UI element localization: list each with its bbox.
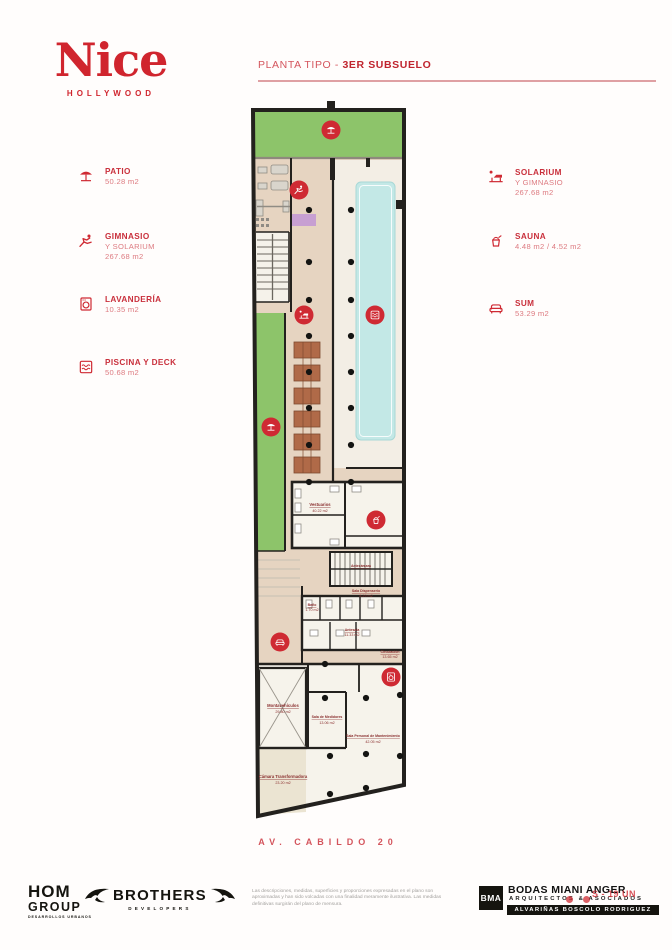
legend-label: SOLARIUM: [515, 168, 563, 178]
legend-subline: Y SOLARIUM: [105, 242, 155, 252]
laundry-marker: [382, 668, 401, 687]
hom-line2: GROUP: [28, 901, 92, 914]
legend-label: SAUNA: [515, 232, 581, 242]
bma-monogram: BMA: [479, 886, 503, 910]
legend-item-gimnasio: GIMNASIO Y SOLARIUM 267.68 m2: [78, 232, 155, 262]
room-label: Montavehículos: [267, 703, 299, 708]
brand-name: Nice: [50, 34, 172, 86]
legend-area: 10.35 m2: [105, 305, 161, 315]
patio-marker-2: [262, 418, 281, 437]
room-area: 1.70 m2: [305, 608, 318, 612]
room-label: Antecámara: [351, 564, 371, 568]
floor-plan: Vestuarios 40.22 m2 Antecámara Sala Disp…: [238, 94, 418, 834]
brothers-name: BROTHERS: [113, 887, 207, 904]
room-area: 29.80 m2: [275, 710, 290, 714]
brothers-subtitle: DEVELOPERS: [84, 906, 236, 911]
legend-area: 267.68 m2: [105, 252, 155, 262]
room-area: 13.06 m2: [319, 721, 334, 725]
legend-subline: Y GIMNASIO: [515, 178, 563, 188]
room-label: Cámara Transformadora: [259, 774, 308, 779]
legend-label: PATIO: [105, 167, 139, 177]
legal-disclaimer: Las descripciones, medidas, superficies …: [252, 889, 467, 908]
page-title: PLANTA TIPO - 3ER SUBSUELO: [258, 59, 431, 71]
room-label: Sala Personal de Mantenimiento: [346, 734, 400, 738]
sauna-icon: [488, 233, 504, 249]
room-area: 23.20 m2: [275, 781, 290, 785]
disclaimer-line: aproximadas y han sido volcadas con una …: [252, 895, 467, 901]
street-address: AV. CABILDO 20: [230, 837, 426, 847]
patio-marker: [322, 121, 341, 140]
room-label: Sala Dispenserio: [352, 589, 380, 593]
baths-zone: [302, 596, 404, 650]
legend-label: PISCINA Y DECK: [105, 358, 176, 368]
eagle-right-icon: [210, 885, 236, 905]
disclaimer-line: definitivas surgirán del plano de mensur…: [252, 902, 467, 908]
sauna-marker: [367, 511, 386, 530]
room-area: 13.65 m2: [382, 655, 397, 659]
bma-firm-name: BODAS MIANI ANGER: [508, 884, 672, 896]
laundry-icon: [78, 296, 94, 312]
legend-area: 50.28 m2: [105, 177, 139, 187]
brothers-developers-logo: BROTHERS DEVELOPERS: [84, 885, 236, 911]
gym-mat: [292, 214, 316, 226]
legend-area: 4.48 m2 / 4.52 m2: [515, 242, 581, 252]
legend-item-patio: PATIO 50.28 m2: [78, 167, 139, 187]
legend-item-solarium: SOLARIUM Y GIMNASIO 267.68 m2: [488, 168, 563, 198]
sum-icon: [488, 300, 504, 316]
bma-firm-subtitle: ARQUITECTOS & ASOCIADOS: [509, 896, 672, 902]
legend-item-piscina: PISCINA Y DECK 50.68 m2: [78, 358, 176, 378]
solarium-icon: [488, 169, 504, 185]
room-area: 11.33 m2: [344, 633, 359, 637]
brochure-page: Nice HOLLYWOOD PLANTA TIPO - 3ER SUBSUEL…: [0, 0, 672, 950]
brand-logo: Nice HOLLYWOOD: [50, 34, 172, 98]
legend-area: 53.29 m2: [515, 309, 549, 319]
bma-partners-bar: ALVARIÑAS BOSCOLO RODRIGUEZ: [507, 905, 659, 915]
gym-marker: [290, 181, 309, 200]
legend-area: 50.68 m2: [105, 368, 176, 378]
legend-item-lavanderia: LAVANDERÍA 10.35 m2: [78, 295, 161, 315]
room-area: 40.22 m2: [312, 509, 327, 513]
solarium-marker: [295, 306, 314, 325]
room-label: Sala de Medidores: [312, 715, 343, 719]
red-overprint-fragment: S - 19 UN: [592, 889, 636, 899]
legend-label: SUM: [515, 299, 549, 309]
red-overprint-blob: [583, 896, 590, 903]
patio-icon: [78, 168, 94, 184]
hom-tagline: DESARROLLOS URBANOS: [28, 916, 92, 920]
room-label: Baño: [308, 603, 317, 607]
room-label: Antesala: [345, 628, 360, 632]
room-area: 8.29 m2: [359, 594, 372, 598]
red-overprint-blob: [566, 896, 573, 903]
legend-area: 267.68 m2: [515, 188, 563, 198]
room-area: 42.05 m2: [365, 740, 380, 744]
pool-icon: [78, 359, 94, 375]
room-label: Circulación: [380, 650, 399, 654]
legend-item-sum: SUM 53.29 m2: [488, 299, 549, 319]
hom-group-logo: HOM GROUP DESARROLLOS URBANOS: [28, 883, 92, 919]
room-label: Vestuarios: [309, 502, 331, 507]
brand-subtitle: HOLLYWOOD: [50, 89, 172, 98]
gym-icon: [78, 233, 94, 249]
page-title-prefix: PLANTA TIPO -: [258, 59, 342, 71]
legend-label: GIMNASIO: [105, 232, 155, 242]
page-title-floor: 3ER SUBSUELO: [342, 59, 431, 71]
eagle-left-icon: [84, 885, 110, 905]
hom-line1: HOM: [28, 883, 92, 900]
title-underline: [258, 80, 656, 82]
sum-marker: [271, 633, 290, 652]
legend-item-sauna: SAUNA 4.48 m2 / 4.52 m2: [488, 232, 581, 252]
legend-label: LAVANDERÍA: [105, 295, 161, 305]
pool-marker: [366, 306, 385, 325]
